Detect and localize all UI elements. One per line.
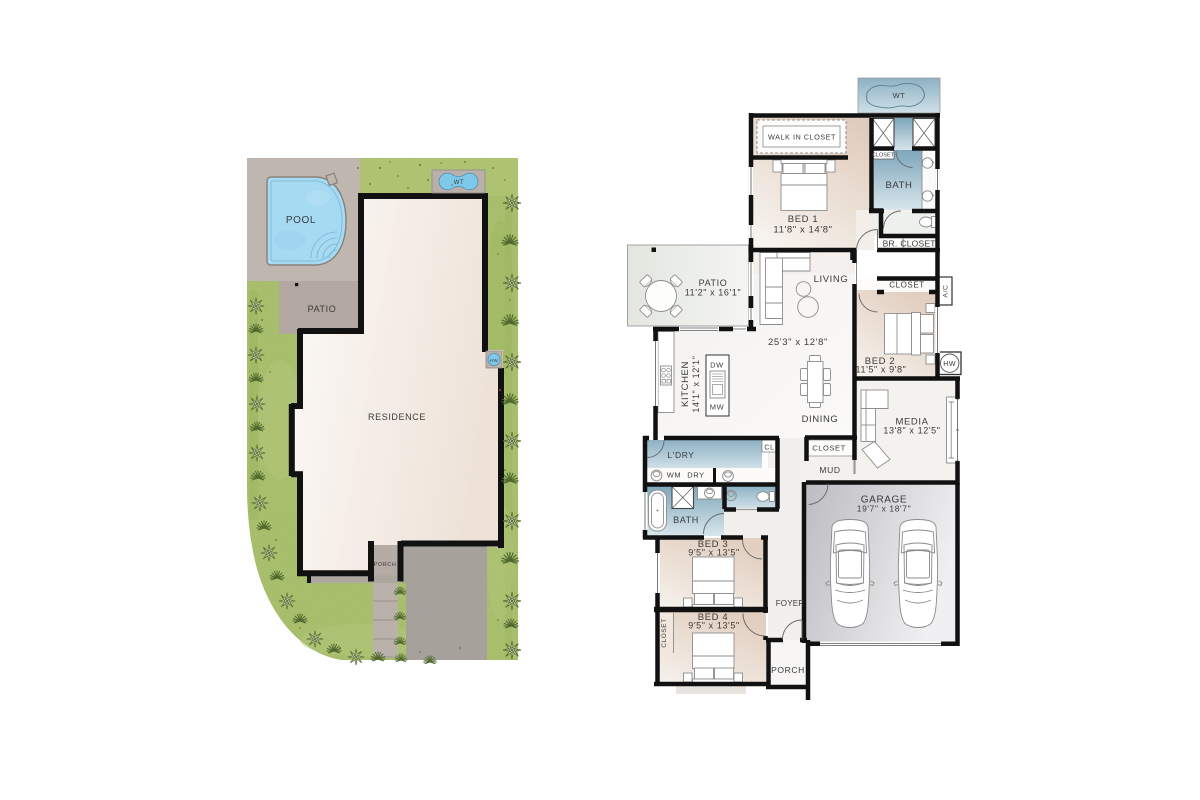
svg-text:MW: MW [710,403,725,412]
svg-text:RESIDENCE: RESIDENCE [368,412,426,422]
svg-text:DW: DW [710,361,724,370]
svg-text:9'5" x 13'5": 9'5" x 13'5" [688,548,740,558]
svg-text:PATIO: PATIO [699,278,728,288]
svg-text:DRY: DRY [687,471,705,480]
svg-text:CLOSET: CLOSET [812,444,846,453]
svg-text:BED 1: BED 1 [788,214,818,225]
svg-text:CLOSET: CLOSET [900,239,935,249]
svg-text:14'1" x 12'1": 14'1" x 12'1" [691,355,701,412]
svg-text:13'8" x 12'5": 13'8" x 12'5" [883,426,940,436]
svg-text:WM: WM [667,471,682,480]
svg-text:HW: HW [490,358,499,363]
svg-text:BATH: BATH [673,515,699,525]
svg-text:19'7" x 18'7": 19'7" x 18'7" [857,504,911,514]
svg-text:CLOSET: CLOSET [889,281,925,290]
svg-text:CLOSET: CLOSET [661,618,668,648]
svg-text:A/C: A/C [942,284,949,297]
svg-text:PATIO: PATIO [308,304,337,314]
svg-text:WT: WT [454,180,465,186]
svg-text:KITCHEN: KITCHEN [680,361,691,407]
svg-text:WALK IN CLOSET: WALK IN CLOSET [768,133,836,142]
svg-text:BATH: BATH [885,180,912,191]
svg-text:POOL: POOL [286,215,316,226]
svg-text:DINING: DINING [802,414,839,425]
svg-text:PORCH: PORCH [374,562,397,568]
svg-text:CLOSET: CLOSET [872,153,895,159]
svg-text:25'3" x 12'8": 25'3" x 12'8" [768,337,828,348]
svg-text:FOYER: FOYER [776,599,805,608]
svg-text:HW: HW [943,361,956,368]
svg-text:9'5" x 13'5": 9'5" x 13'5" [688,621,740,631]
svg-text:MUD: MUD [819,465,840,475]
svg-text:11'8" x 14'8": 11'8" x 14'8" [773,225,832,236]
svg-text:WT: WT [893,91,906,100]
svg-text:11'2" x 16'1": 11'2" x 16'1" [685,288,742,298]
svg-text:BR.: BR. [883,239,898,249]
svg-text:LIVING: LIVING [814,274,849,285]
svg-text:PORCH: PORCH [771,665,805,675]
svg-text:11'5" x 9'8": 11'5" x 9'8" [856,365,907,375]
svg-text:L'DRY: L'DRY [667,450,694,460]
svg-text:CL: CL [764,445,774,452]
